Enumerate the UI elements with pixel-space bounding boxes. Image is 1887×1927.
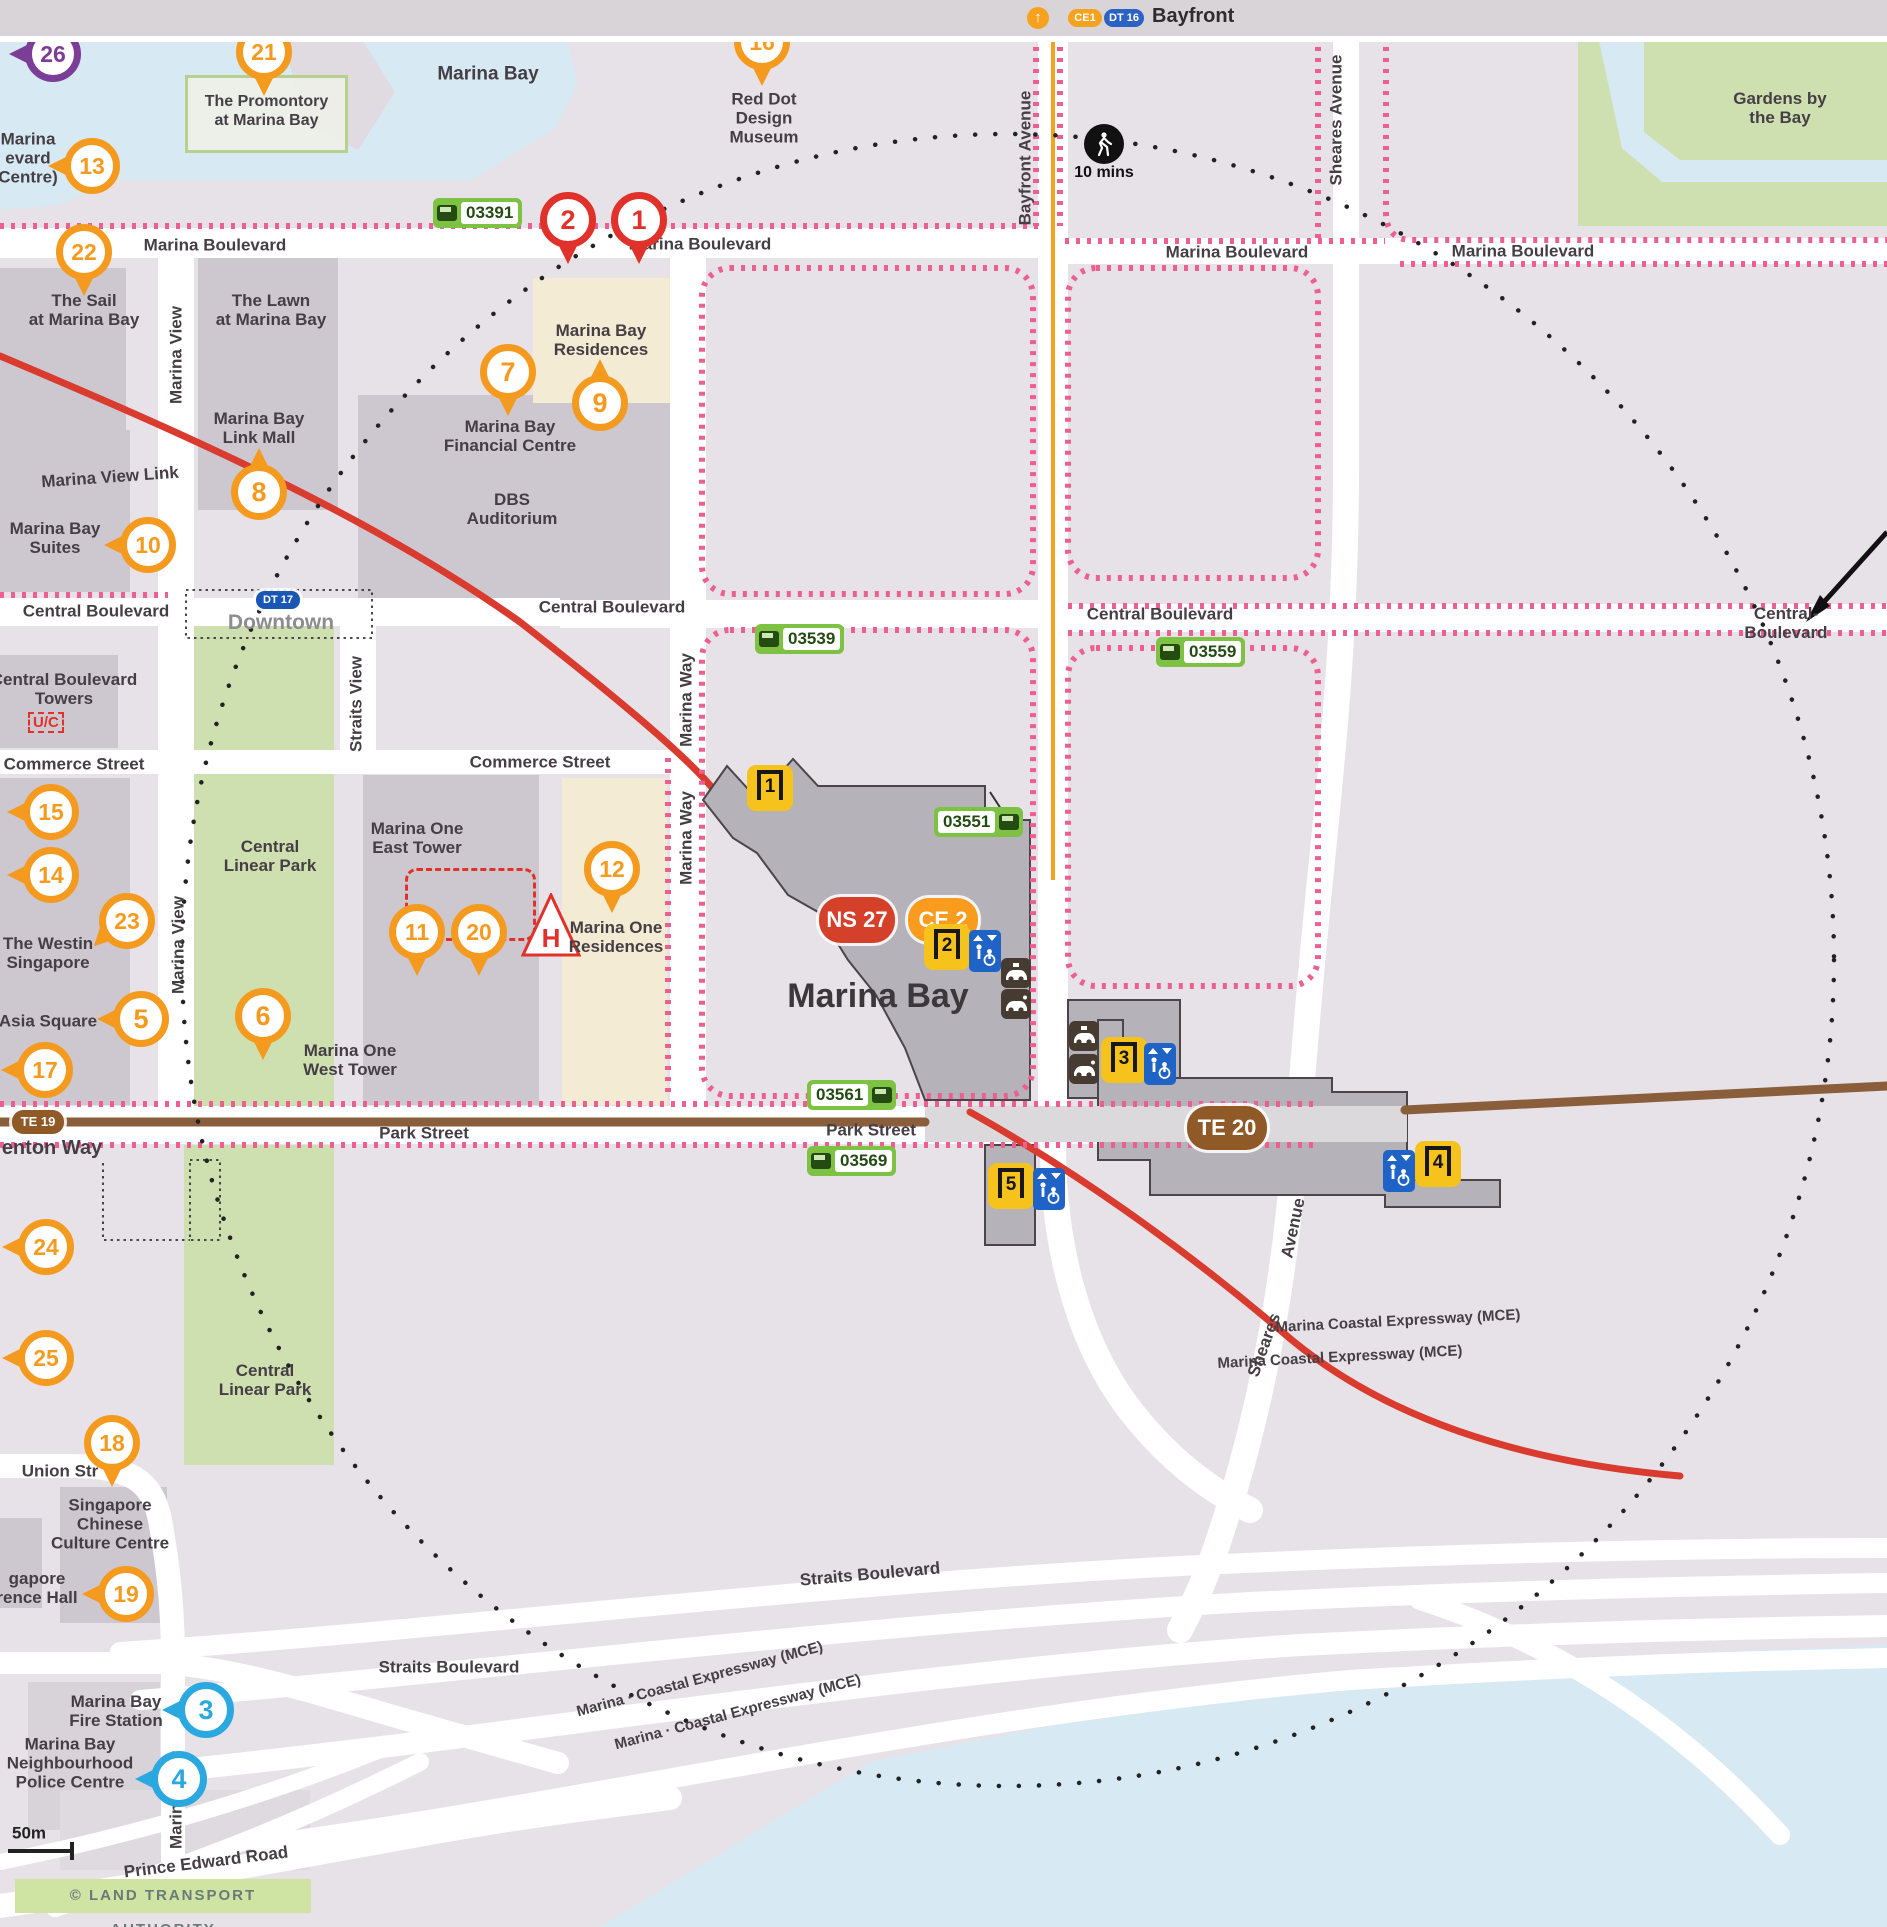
pin-circle: 18	[84, 1415, 140, 1471]
street-central-boulevard-1: Central Boulevard	[23, 601, 169, 620]
exit-2: 2	[924, 924, 970, 970]
bus-stop-03551: 03551	[934, 807, 1023, 837]
exit-4: 4	[1415, 1141, 1461, 1187]
street-central-boulevard-3: Central Boulevard	[1087, 604, 1233, 623]
lift-icon	[1383, 1150, 1415, 1192]
pin-circle: 1	[611, 192, 667, 248]
asia-square: Asia Square	[0, 1011, 97, 1030]
bus-icon	[1160, 644, 1180, 660]
pin-circle: 14	[23, 847, 79, 903]
street-marina-view-2: Marina View	[168, 896, 187, 994]
sccc: Singapore Chinese Culture Centre	[51, 1495, 169, 1552]
pin-circle: 6	[235, 988, 291, 1044]
commerce-street-e: Commerce Street	[470, 752, 611, 771]
street-sheares-avenue-1: Sheares Avenue	[1326, 54, 1345, 185]
lift-icon	[1033, 1168, 1065, 1210]
north-arrow-icon: ↑	[1027, 7, 1049, 29]
pin-circle: 7	[480, 344, 536, 400]
taxi-pickup-icon	[1001, 989, 1031, 1019]
red-dot-design-museum: Red Dot Design Museum	[730, 89, 799, 146]
the-westin-singapore: The Westin Singapore	[3, 934, 93, 972]
street-park-street-2: Park Street	[826, 1120, 916, 1139]
bus-icon	[759, 631, 779, 647]
the-sail: The Sail at Marina Bay	[29, 291, 140, 329]
street-marina-boulevard-4: Marina Boulevard	[1452, 241, 1595, 260]
bus-stop-03561: 03561	[807, 1080, 896, 1110]
street-central-boulevard-2: Central Boulevard	[539, 597, 685, 616]
under-construction-tag: U/C	[28, 712, 64, 733]
central-linear-park-s: Central Linear Park	[219, 1361, 312, 1399]
pin-circle: 10	[120, 517, 176, 573]
taxi-taxi-icon	[1001, 958, 1031, 988]
lift-icon	[969, 930, 1001, 972]
street-bayfront-avenue: Bayfront Avenue	[1015, 91, 1034, 226]
police-centre: Marina Bay Neighbourhood Police Centre	[7, 1734, 134, 1791]
street-straits-boulevard-1: Straits Boulevard	[379, 1657, 520, 1676]
street-park-street-1: Park Street	[379, 1123, 469, 1142]
taxi-taxi-icon	[1069, 1021, 1099, 1051]
pin-circle: 19	[98, 1566, 154, 1622]
pin-circle: 23	[99, 893, 155, 949]
pin-circle: 9	[572, 375, 628, 431]
lift-icon	[1144, 1043, 1176, 1085]
pin-circle: 3	[178, 1682, 234, 1738]
exit-5: 5	[988, 1163, 1034, 1209]
street-union-street: Union Str	[22, 1461, 99, 1480]
downtown-station-label: Downtown	[228, 611, 334, 635]
street-marina-way-2: Marina Way	[676, 791, 695, 885]
map-canvas: The Promontory at Marina Bay U/C H © LAN…	[0, 36, 1887, 1927]
marina-one-east-tower: Marina One East Tower	[371, 819, 464, 857]
street-marina-way-1: Marina Way	[676, 653, 695, 747]
gardens-by-the-bay: Gardens by the Bay	[1727, 89, 1834, 127]
copyright: © LAND TRANSPORT AUTHORITY	[15, 1879, 311, 1913]
central-linear-park-n: Central Linear Park	[224, 837, 317, 875]
bus-stop-03559: 03559	[1156, 637, 1245, 667]
top-bar: ↑ CE1 DT 16 Bayfront	[0, 0, 1887, 42]
pin-circle: 4	[151, 1751, 207, 1807]
scale-label: 50m	[12, 1823, 46, 1842]
exit-1: 1	[747, 765, 793, 811]
central-boulevard-towers: Central Boulevard Towers	[0, 670, 137, 708]
bus-icon	[437, 205, 457, 221]
dbs-auditorium: DBS Auditorium	[467, 490, 558, 528]
bus-stop-03391: 03391	[433, 198, 522, 228]
the-lawn: The Lawn at Marina Bay	[216, 291, 327, 329]
pin-circle: 17	[17, 1042, 73, 1098]
marina-bay-financial-centre: Marina Bay Financial Centre	[444, 417, 576, 455]
pin-circle: 22	[56, 224, 112, 280]
commerce-street-w: Commerce Street	[4, 754, 145, 773]
pin-circle: 13	[64, 138, 120, 194]
pin-circle: 11	[389, 904, 445, 960]
station-name: Marina Bay	[787, 977, 968, 1015]
line-badge-dt17: DT 17	[256, 591, 300, 609]
bus-icon	[872, 1087, 892, 1103]
street-marina-boulevard-3: Marina Boulevard	[1166, 242, 1309, 261]
street-central-boulevard-4: Central-Boulevard	[1736, 604, 1837, 642]
walking-man-icon	[1084, 124, 1124, 164]
bus-icon	[999, 814, 1019, 830]
street-straits-view: Straits View	[346, 656, 365, 752]
pin-circle: 12	[584, 841, 640, 897]
line-badge-te19: TE 19	[12, 1110, 64, 1134]
pin-circle: 2	[540, 192, 596, 248]
adjacent-station-name: Bayfront	[1152, 5, 1234, 28]
taxi-pickup-icon	[1069, 1054, 1099, 1084]
pin-circle: 24	[18, 1219, 74, 1275]
pin-circle: 15	[23, 784, 79, 840]
pin-circle: 20	[451, 904, 507, 960]
marina-bay-link-mall: Marina Bay Link Mall	[214, 409, 305, 447]
pin-circle: 8	[231, 464, 287, 520]
bus-icon	[811, 1153, 831, 1169]
street-marina-boulevard-1: Marina Boulevard	[144, 235, 287, 254]
line-badge-dt16: DT 16	[1104, 9, 1144, 27]
bus-stop-03539: 03539	[755, 624, 844, 654]
pin-circle: 25	[18, 1330, 74, 1386]
marina-bay-residences: Marina Bay Residences	[554, 321, 649, 359]
fire-station: Marina Bay Fire Station	[69, 1692, 163, 1730]
marina-one-residences: Marina One Residences	[569, 918, 664, 956]
lta-locality-map: ↑ CE1 DT 16 Bayfront	[0, 0, 1887, 1927]
line-badge-ns27: NS 27	[819, 897, 895, 943]
conference-hall-fragment: gapore rence Hall	[0, 1569, 78, 1607]
walk-time-label: 10 mins	[1074, 164, 1134, 182]
marina-bay-suites: Marina Bay Suites	[10, 519, 101, 557]
shenton-way-fragment: enton Way	[2, 1137, 102, 1159]
pin-circle: 5	[113, 991, 169, 1047]
exit-3: 3	[1101, 1037, 1147, 1083]
park-central-linear-south	[184, 1145, 334, 1465]
water-label-marina-bay: Marina Bay	[437, 63, 538, 84]
street-marina-view-1: Marina View	[166, 306, 185, 404]
line-badge-ce1: CE1	[1068, 9, 1102, 27]
line-badge-te20: TE 20	[1187, 1106, 1267, 1150]
marina-one-west-tower: Marina One West Tower	[303, 1041, 397, 1079]
bus-stop-03569: 03569	[807, 1146, 896, 1176]
